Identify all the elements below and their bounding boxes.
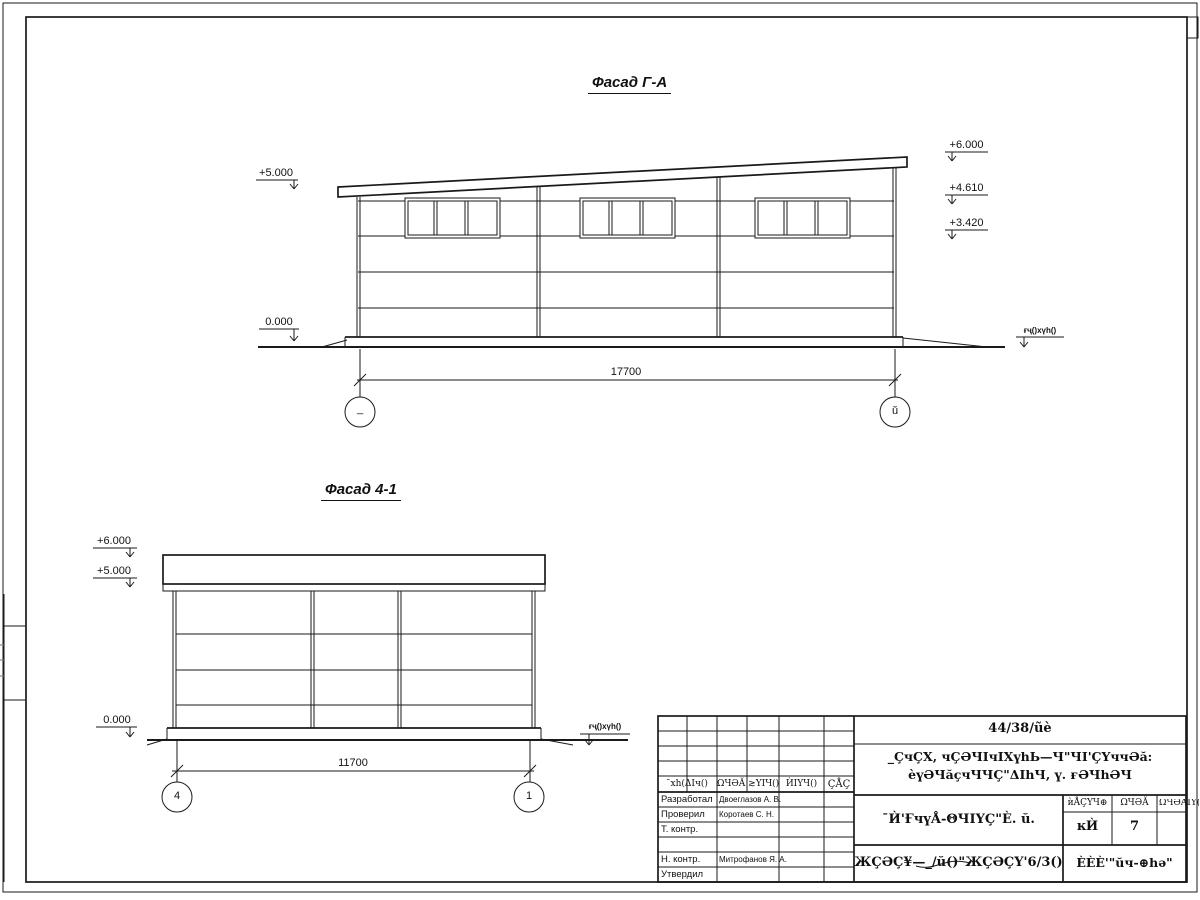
role-checked: Проверил <box>661 810 716 820</box>
stage-header: ѝÅÇҮЧ⊕ <box>1063 799 1112 809</box>
name-developed: Двоеглазов А. В. <box>719 796 779 805</box>
side-stamp <box>0 594 26 882</box>
dimension-17700: 17700 <box>596 366 656 378</box>
project-name-line2: ѐүӘЧăçчЧЧÇ"ΔІһЧ, ү. ғӘЧһӘЧ <box>854 768 1186 782</box>
dimension-11700: 11700 <box>323 757 383 769</box>
axis-bubble-left-label: _ <box>345 403 375 415</box>
role-approved: Утвердил <box>661 870 716 880</box>
drawing-sheet: Фасад Г-А +5.000 0.000 +6.000 +4.610 +3.… <box>0 0 1200 900</box>
facade-41-title: Фасад 4-1 <box>321 481 401 501</box>
ground-level-label-b: ғҷ()хүһ() <box>580 723 630 732</box>
ground-level-label: ғҷ()хүһ() <box>1016 327 1064 336</box>
role-tcontrol: Т. контр. <box>661 825 716 835</box>
rev-header-list-ndoc: ΩЧӘĂ ≳ҮІЧ() <box>717 780 779 790</box>
facade-41-linework <box>93 548 630 812</box>
project-name-line1: _ÇчÇХ, чÇӘЧІчІХүһЬ—Ч"ЧІ'ÇҮччӘă: <box>854 750 1186 764</box>
axis-bubble-1-label: 1 <box>514 790 544 802</box>
sheets-header: ΩЧӘĂІҮ() <box>1159 799 1199 809</box>
facade-ga-title: Фасад Г-А <box>588 74 671 94</box>
axis-bubble-4-label: 4 <box>162 790 192 802</box>
role-ncontrol: Н. контр. <box>661 855 716 865</box>
level-mark-plus5000-b: +5.000 <box>93 565 135 577</box>
level-mark-plus4610: +4.610 <box>945 182 988 194</box>
sheet-linework <box>0 0 1200 900</box>
level-mark-plus5000: +5.000 <box>257 167 295 179</box>
role-developed: Разработал <box>661 795 716 805</box>
level-mark-0000: 0.000 <box>261 316 297 328</box>
level-mark-plus6000: +6.000 <box>945 139 988 151</box>
stage-value: ĸЍ <box>1063 820 1112 834</box>
name-checked: Коротаев С. Н. <box>719 811 779 820</box>
rev-header-izm: ¯хһ(ΔІч() <box>657 780 717 790</box>
drawing-title-cell: ¯Ѝ'ҒчүÅ-ΘЧІҮÇ"È. ŭ. <box>854 813 1063 827</box>
rev-header-data: ÇÅÇ <box>824 779 854 790</box>
rev-header-podp: ЍІҮЧ() <box>779 780 824 790</box>
axis-bubble-right-label: ŭ <box>880 405 910 417</box>
level-mark-0000-b: 0.000 <box>98 714 136 726</box>
company-cell: ÈÈÈ'"ŭч-⊕һә" <box>1063 856 1186 870</box>
bottom-code-cell: ЖÇӘÇ¥—_/ŭ()"ЖÇӘÇҮ'6/3() <box>854 856 1063 870</box>
sheet-header: ΩЧӘĂ <box>1112 799 1157 809</box>
sheet-value: 7 <box>1112 820 1157 834</box>
level-mark-plus6000-b: +6.000 <box>93 535 135 547</box>
name-ncontrol: Митрофанов Я. А. <box>719 856 779 865</box>
facade-ga-windows <box>405 198 850 238</box>
level-mark-plus3420: +3.420 <box>945 217 988 229</box>
doc-number: 44/38/ũè <box>854 722 1186 736</box>
facade-ga-linework <box>256 152 1064 427</box>
